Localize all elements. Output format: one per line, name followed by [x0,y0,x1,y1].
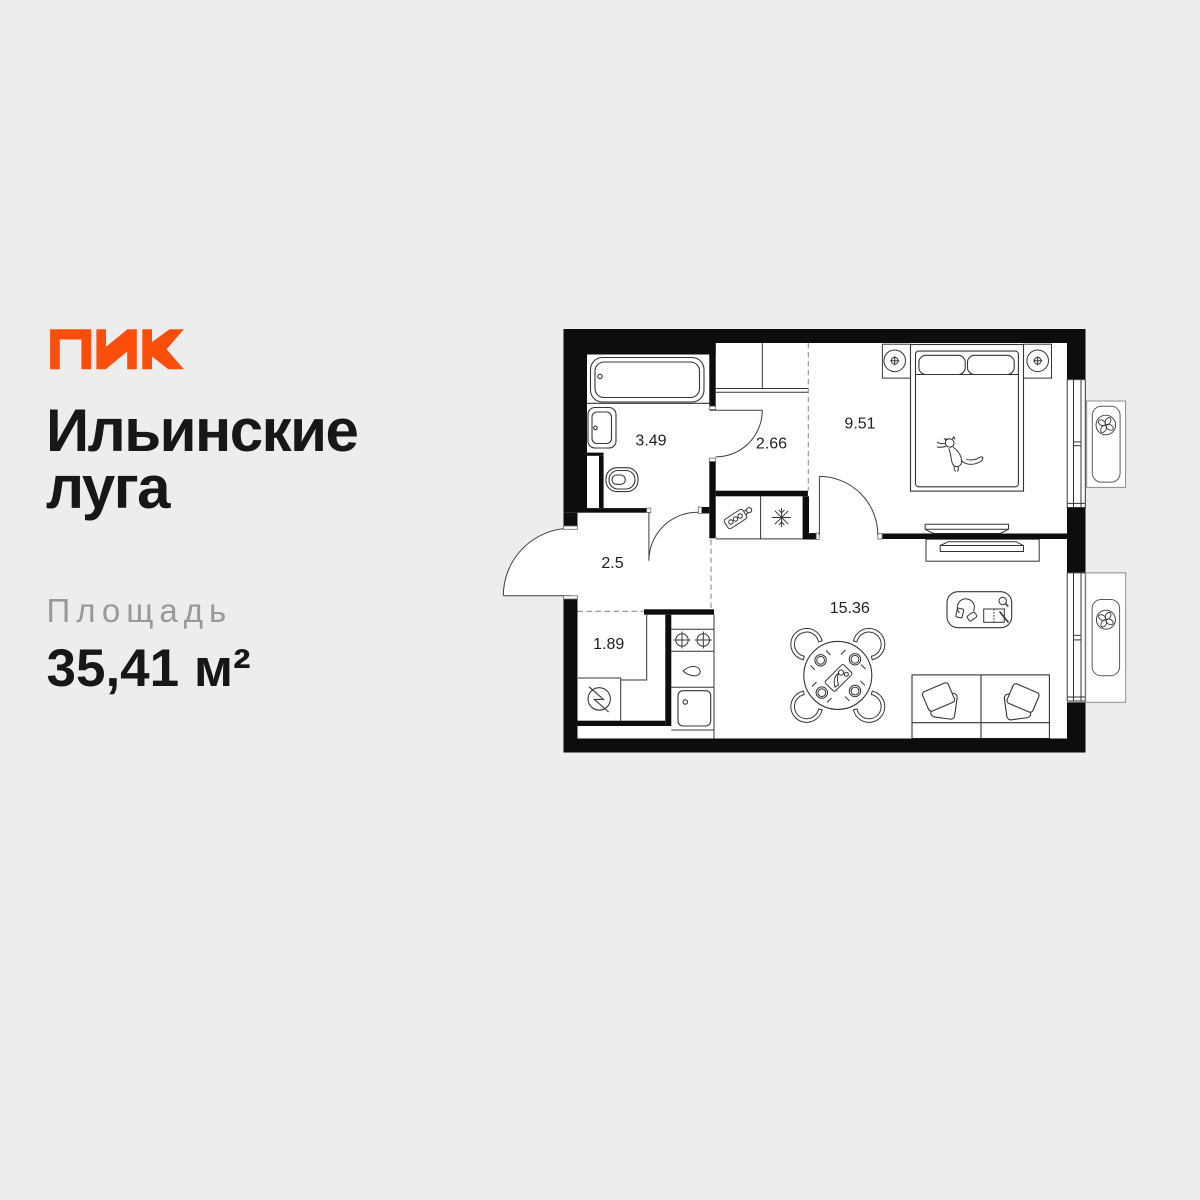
svg-text:15.36: 15.36 [830,600,870,617]
svg-text:1.89: 1.89 [593,636,624,653]
svg-text:9.51: 9.51 [844,416,875,433]
svg-text:2.66: 2.66 [756,436,787,453]
svg-text:2.5: 2.5 [601,555,623,572]
svg-text:3.49: 3.49 [635,433,666,450]
